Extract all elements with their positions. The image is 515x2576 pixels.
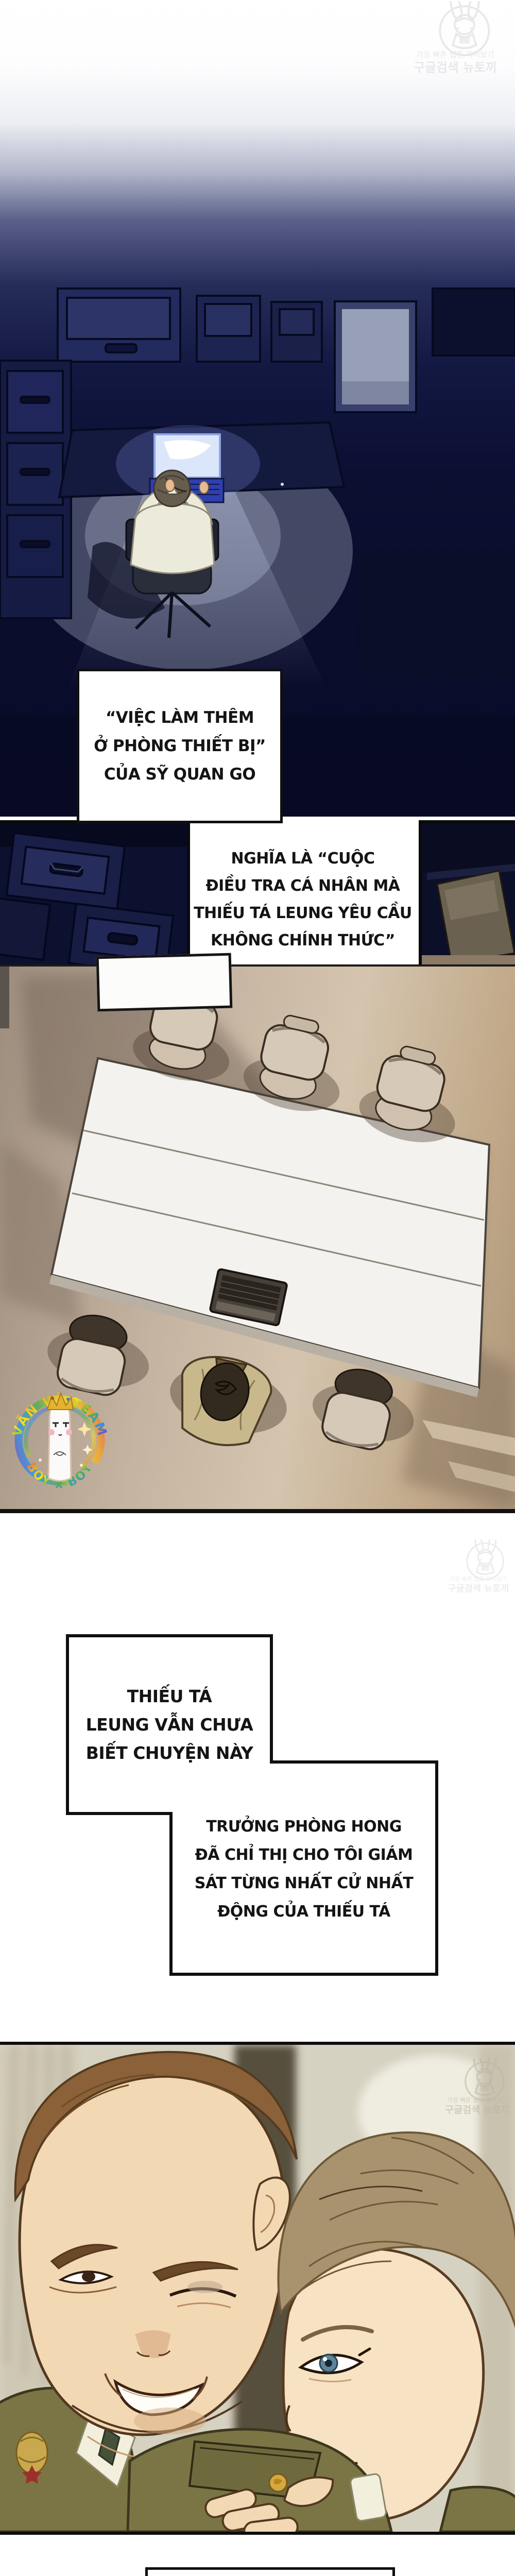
panel-drawers-closeup	[0, 820, 190, 968]
bubble-2-line-2: ĐIỀU TRA CÁ NHÂN MÀ	[205, 872, 400, 900]
panel-shelf-closeup	[419, 820, 515, 968]
bubble-1-line-2: Ở PHÒNG THIẾT BỊ”	[94, 732, 266, 760]
bubble-2-line-3: THIẾU TÁ LEUNG YÊU CẦU	[194, 900, 412, 927]
bubble-2-line-1: NGHĨA LÀ “CUỘC	[231, 845, 374, 872]
bubble-4-line-1: TRƯỞNG PHÒNG HONG	[206, 1812, 402, 1841]
bubble-2-line-4: KHÔNG CHÍNH THỨC”	[211, 927, 395, 954]
bubble-1-line-1: “VIỆC LÀM THÊM	[106, 704, 254, 732]
bubble-3-line-1: THIẾU TÁ	[127, 1682, 212, 1710]
conference-room-art: VĂN VÀ TEAM BOY x BOY	[0, 967, 515, 1509]
bubble-4-line-2: ĐÃ CHỈ THỊ CHO TÔI GIÁM	[195, 1841, 413, 1869]
gray-board	[335, 301, 416, 412]
whiteboard-screen	[96, 953, 233, 1012]
newtoki-watermark-panel3	[434, 2058, 515, 2118]
bubble-4-line-4: ĐỘNG CỦA THIẾU TÁ	[217, 1897, 390, 1926]
bubble-3-line-2: LEUNG VẪN CHƯA	[86, 1710, 253, 1739]
newtoki-watermark-middle	[437, 1539, 515, 1596]
bubble-1-line-3: CỦA SỸ QUAN GO	[104, 760, 255, 789]
bubble-3-line-3: BIẾT CHUYỆN NÀY	[86, 1739, 253, 1767]
drawers-art	[0, 823, 187, 968]
shelf-art	[422, 823, 515, 968]
speech-bubble-1: “VIỆC LÀM THÊM Ở PHÒNG THIẾT BỊ” CỦA SỸ …	[77, 669, 283, 823]
bubble-4-line-3: SÁT TỪNG NHẤT CỬ NHẤT	[195, 1869, 413, 1897]
speech-bubble-5: VÀ TÔI ĐANG NẮM BẮT ĐƯỢC PHẦN NÀO MỐI LI…	[145, 2567, 395, 2576]
equipment-crates	[58, 289, 515, 362]
speech-bubble-4: TRƯỞNG PHÒNG HONG ĐÃ CHỈ THỊ CHO TÔI GIÁ…	[171, 1772, 437, 1965]
webtoon-page: 가장 빠른 웹툰 미리보기 구글검색 뉴토끼	[0, 0, 515, 2576]
speech-bubble-2: NGHĨA LÀ “CUỘC ĐIỀU TRA CÁ NHÂN MÀ THIẾU…	[174, 839, 432, 960]
panel-conference-room-overhead: VĂN VÀ TEAM BOY x BOY	[0, 964, 515, 1513]
newtoki-watermark-top	[399, 1, 511, 78]
